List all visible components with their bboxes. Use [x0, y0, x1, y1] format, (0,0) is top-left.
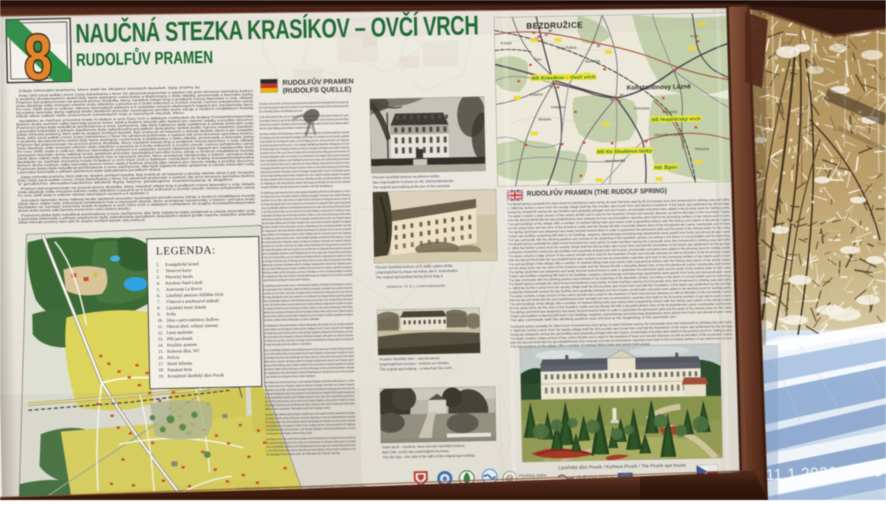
svg-text:15.: 15.	[158, 349, 164, 354]
svg-text:2.: 2.	[156, 268, 159, 273]
svg-text:1.: 1.	[156, 262, 159, 267]
svg-text:16.: 16.	[158, 355, 164, 360]
svg-text:Prusíkův pramen: Prusíkův pramen	[167, 342, 198, 348]
svg-text:Plavecký bazén: Plavecký bazén	[165, 274, 193, 280]
svg-text:7.: 7.	[157, 299, 160, 304]
svg-text:Poloučany: Poloučany	[634, 106, 650, 110]
svg-text:Břetislav: Břetislav	[538, 117, 551, 121]
svg-text:13.: 13.	[158, 336, 164, 341]
svg-text:Památná štola: Památná štola	[167, 367, 192, 373]
svg-text:Příhodná: Příhodná	[695, 147, 709, 151]
svg-text:14.: 14.	[158, 343, 164, 348]
svg-text:Black Buk: Black Buk	[585, 59, 600, 63]
svg-text:12.: 12.	[158, 330, 164, 335]
svg-text:11.: 11.	[158, 324, 163, 329]
svg-text:Krasíkov: Krasíkov	[530, 92, 544, 96]
svg-text:18.: 18.	[158, 367, 164, 372]
svg-text:19.: 19.	[159, 374, 165, 379]
svg-text:Autocamp La Rocca: Autocamp La Rocca	[166, 286, 202, 292]
svg-text:8.: 8.	[157, 305, 160, 310]
svg-text:Čeliv: Čeliv	[534, 56, 542, 61]
svg-text:9.: 9.	[157, 312, 160, 317]
svg-text:Tenisové kurty: Tenisové kurty	[165, 268, 192, 274]
svg-text:LEGENDA:: LEGENDA:	[156, 244, 216, 257]
svg-text:Pěší pavilonek: Pěší pavilonek	[167, 336, 194, 342]
svg-text:Dolní Polžice: Dolní Polžice	[557, 46, 577, 50]
svg-text:Policie: Policie	[167, 355, 179, 360]
svg-text:10.: 10.	[157, 318, 163, 323]
svg-text:17.: 17.	[158, 361, 164, 366]
svg-text:RUDOLFŮV PRAMEN: RUDOLFŮV PRAMEN	[76, 45, 213, 70]
svg-text:Letní amfiteátr: Letní amfiteátr	[167, 330, 194, 336]
svg-text:Blahousty: Blahousty	[662, 110, 677, 114]
svg-text:6.: 6.	[157, 293, 160, 298]
svg-text:Hotel Jitřenka: Hotel Jitřenka	[167, 361, 192, 367]
svg-text:3.: 3.	[156, 274, 159, 279]
svg-text:4.: 4.	[157, 281, 160, 286]
svg-text:Konstantinovy Lázně: Konstantinovy Lázně	[627, 83, 692, 91]
svg-text:Potín: Potín	[691, 34, 699, 38]
svg-text:(RUDOLFS QUELLE): (RUDOLFS QUELLE)	[283, 86, 352, 94]
svg-text:Lázeňský hotel Jirásek: Lázeňský hotel Jirásek	[166, 304, 207, 310]
svg-text:Pošta: Pošta	[166, 311, 176, 316]
svg-text:NS Hradišťský vrch: NS Hradišťský vrch	[651, 116, 700, 122]
svg-text:Kavárna Staré Lázně: Kavárna Staré Lázně	[166, 280, 203, 286]
svg-text:Okrouhlé Hradiště: Okrouhlé Hradiště	[655, 133, 683, 138]
svg-text:5.: 5.	[157, 287, 160, 292]
svg-text:Evangelický kostel: Evangelický kostel	[165, 261, 199, 267]
svg-text:Kokašice: Kokašice	[551, 105, 565, 109]
svg-text:Plzeňská dráha: Plzeňská dráha	[519, 472, 547, 478]
svg-text:Martínkovský: Martínkovský	[605, 159, 625, 163]
